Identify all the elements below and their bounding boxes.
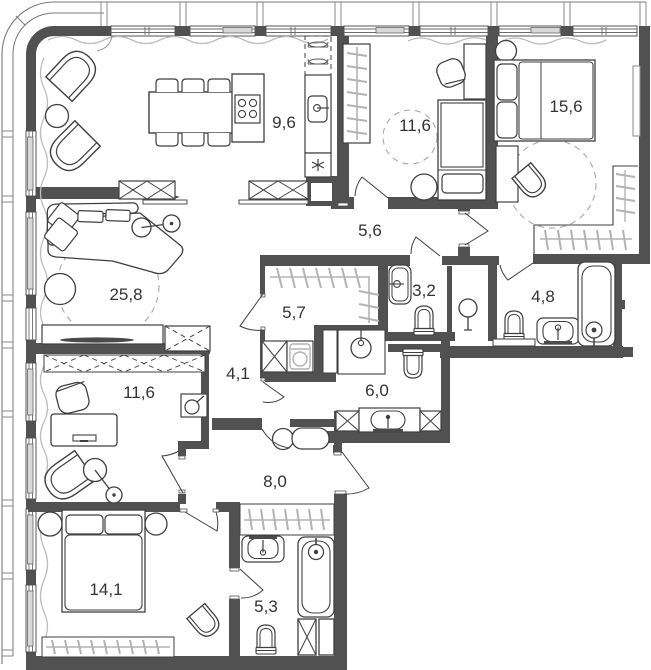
svg-text:8,0: 8,0 <box>263 472 287 491</box>
svg-text:4,8: 4,8 <box>531 287 555 306</box>
svg-text:15,6: 15,6 <box>549 97 582 116</box>
svg-text:6,0: 6,0 <box>365 381 389 400</box>
svg-text:25,8: 25,8 <box>109 285 142 304</box>
svg-text:5,3: 5,3 <box>254 597 278 616</box>
svg-text:9,6: 9,6 <box>272 113 296 132</box>
svg-text:11,6: 11,6 <box>399 116 431 135</box>
svg-text:3,2: 3,2 <box>412 281 436 300</box>
svg-text:14,1: 14,1 <box>89 580 122 599</box>
svg-text:5,7: 5,7 <box>282 303 306 322</box>
svg-text:11,6: 11,6 <box>123 383 155 402</box>
svg-text:5,6: 5,6 <box>358 221 382 240</box>
svg-text:4,1: 4,1 <box>226 364 250 383</box>
